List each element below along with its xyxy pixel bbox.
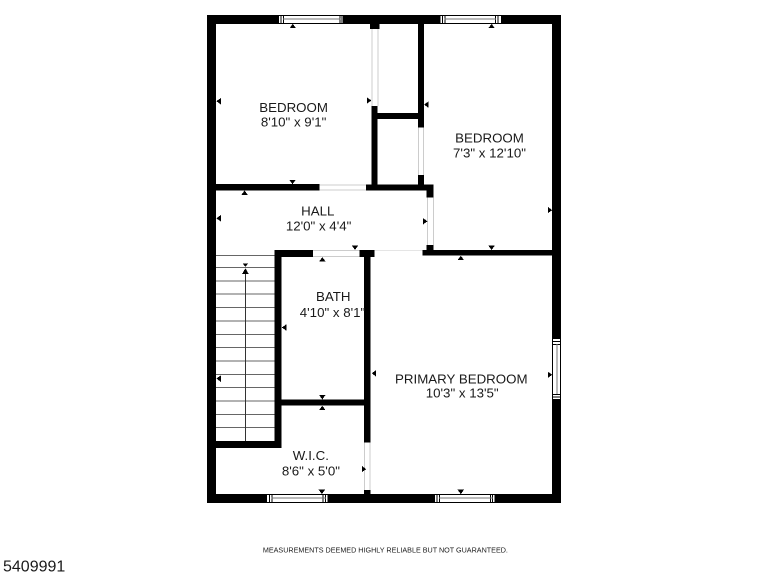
svg-text:8'6" x 5'0": 8'6" x 5'0"	[282, 464, 340, 479]
svg-text:8'10" x 9'1": 8'10" x 9'1"	[261, 115, 327, 130]
svg-text:12'0" x 4'4": 12'0" x 4'4"	[286, 219, 352, 234]
svg-text:BEDROOM: BEDROOM	[259, 100, 328, 115]
svg-text:W.I.C.: W.I.C.	[293, 448, 329, 463]
svg-text:5409991: 5409991	[3, 558, 65, 575]
svg-text:4'10" x 8'1": 4'10" x 8'1"	[300, 305, 366, 320]
svg-text:BEDROOM: BEDROOM	[455, 130, 524, 145]
svg-text:7'3" x 12'10": 7'3" x 12'10"	[453, 145, 526, 160]
svg-text:MEASUREMENTS DEEMED HIGHLY REL: MEASUREMENTS DEEMED HIGHLY RELIABLE BUT …	[263, 545, 508, 554]
svg-text:BATH: BATH	[316, 289, 350, 304]
svg-text:HALL: HALL	[301, 203, 334, 218]
svg-text:10'3" x 13'5": 10'3" x 13'5"	[426, 385, 499, 400]
